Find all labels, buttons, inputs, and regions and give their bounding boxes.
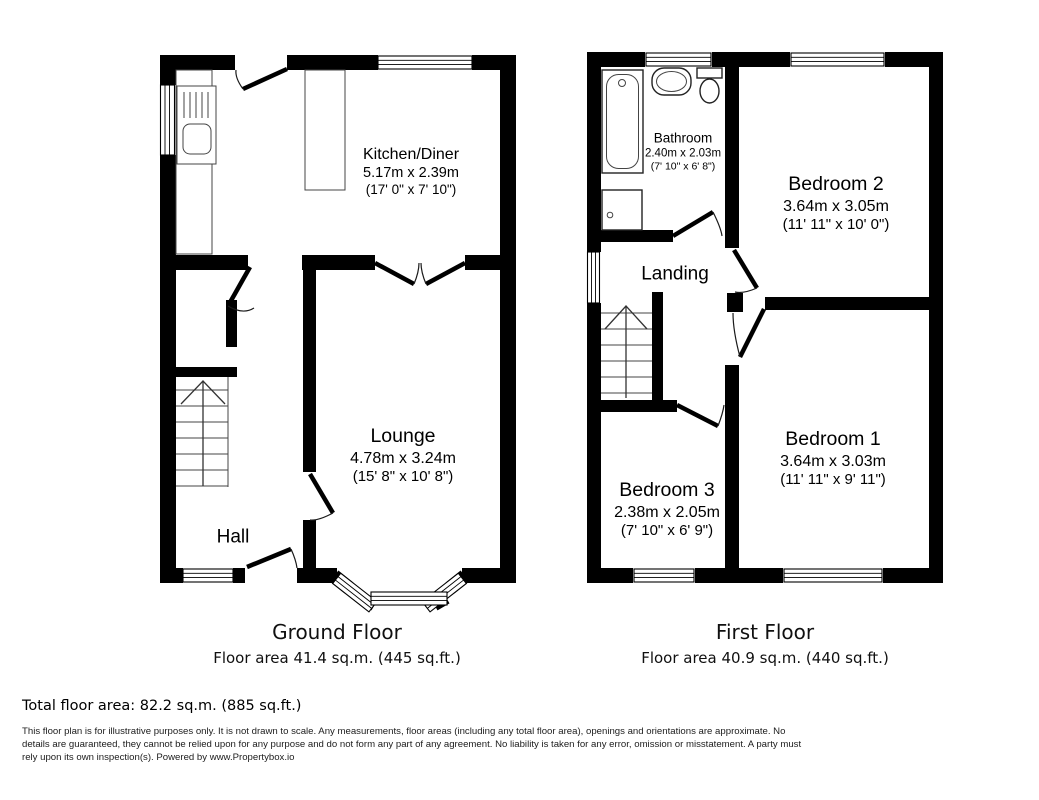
sink-unit	[177, 86, 216, 164]
ground-floor-area: Floor area 41.4 sq.m. (445 sq.ft.)	[213, 649, 461, 667]
disclaimer-text: This floor plan is for illustrative purp…	[22, 726, 814, 764]
staircase-ground	[176, 377, 228, 487]
first-floor-doors	[673, 212, 764, 426]
room-dim-imperial: (7' 10" x 6' 9")	[614, 523, 720, 541]
room-name: Bedroom 2	[783, 173, 890, 197]
floorplan-page: Kitchen/Diner 5.17m x 2.39m (17' 0" x 7'…	[0, 0, 1039, 800]
ground-floor-title: Ground Floor	[272, 620, 402, 644]
bay-window	[333, 573, 467, 612]
front-door	[247, 549, 291, 567]
door-hall-lounge	[310, 474, 333, 513]
room-dim-metric: 2.40m x 2.03m	[645, 147, 721, 161]
room-name: Lounge	[350, 425, 456, 449]
floorplan-drawing	[0, 0, 1039, 800]
shower-tray	[602, 190, 642, 230]
room-label-bathroom: Bathroom 2.40m x 2.03m (7' 10" x 6' 8")	[645, 130, 721, 173]
bathtub	[602, 70, 643, 173]
kitchen-peninsula	[305, 70, 345, 190]
first-floor-title: First Floor	[716, 620, 814, 644]
room-name: Bedroom 1	[780, 428, 886, 452]
room-name: Bedroom 3	[614, 479, 720, 503]
room-label-bedroom2: Bedroom 2 3.64m x 3.05m (11' 11" x 10' 0…	[783, 173, 890, 235]
room-label-kitchen: Kitchen/Diner 5.17m x 2.39m (17' 0" x 7'…	[363, 145, 459, 199]
room-dim-imperial: (15' 8" x 10' 8")	[350, 469, 456, 487]
room-dim-metric: 4.78m x 3.24m	[350, 449, 456, 469]
room-dim-imperial: (17' 0" x 7' 10")	[363, 182, 459, 198]
room-dim-metric: 3.64m x 3.03m	[780, 452, 886, 472]
room-dim-imperial: (7' 10" x 6' 8")	[645, 161, 721, 174]
toilet	[697, 68, 722, 103]
room-label-landing: Landing	[641, 262, 709, 285]
door-bathroom	[673, 212, 713, 236]
room-label-lounge: Lounge 4.78m x 3.24m (15' 8" x 10' 8")	[350, 425, 456, 487]
room-label-bedroom3: Bedroom 3 2.38m x 2.05m (7' 10" x 6' 9")	[614, 479, 720, 541]
door-bedroom3	[677, 405, 718, 426]
room-dim-metric: 3.64m x 3.05m	[783, 197, 890, 217]
room-label-bedroom1: Bedroom 1 3.64m x 3.03m (11' 11" x 9' 11…	[780, 428, 886, 490]
door-kitchen-hall	[228, 267, 250, 306]
room-dim-imperial: (11' 11" x 9' 11")	[780, 472, 886, 490]
door-bedroom1	[740, 309, 764, 357]
room-name: Kitchen/Diner	[363, 145, 459, 165]
door-kitchen-entry	[243, 69, 287, 89]
staircase-first	[601, 306, 652, 398]
door-bedroom2	[734, 250, 757, 288]
room-dim-metric: 5.17m x 2.39m	[363, 165, 459, 183]
ground-floor-doors	[228, 69, 465, 568]
room-dim-imperial: (11' 11" x 10' 0")	[783, 217, 890, 235]
double-doors-kitchen-lounge	[375, 263, 465, 284]
kitchen-fixtures	[176, 70, 345, 254]
first-floor-area: Floor area 40.9 sq.m. (440 sq.ft.)	[641, 649, 889, 667]
total-floor-area: Total floor area: 82.2 sq.m. (885 sq.ft.…	[22, 698, 301, 714]
room-name: Bathroom	[645, 130, 721, 146]
wash-basin	[652, 68, 691, 95]
room-label-hall: Hall	[217, 525, 250, 548]
room-dim-metric: 2.38m x 2.05m	[614, 503, 720, 523]
